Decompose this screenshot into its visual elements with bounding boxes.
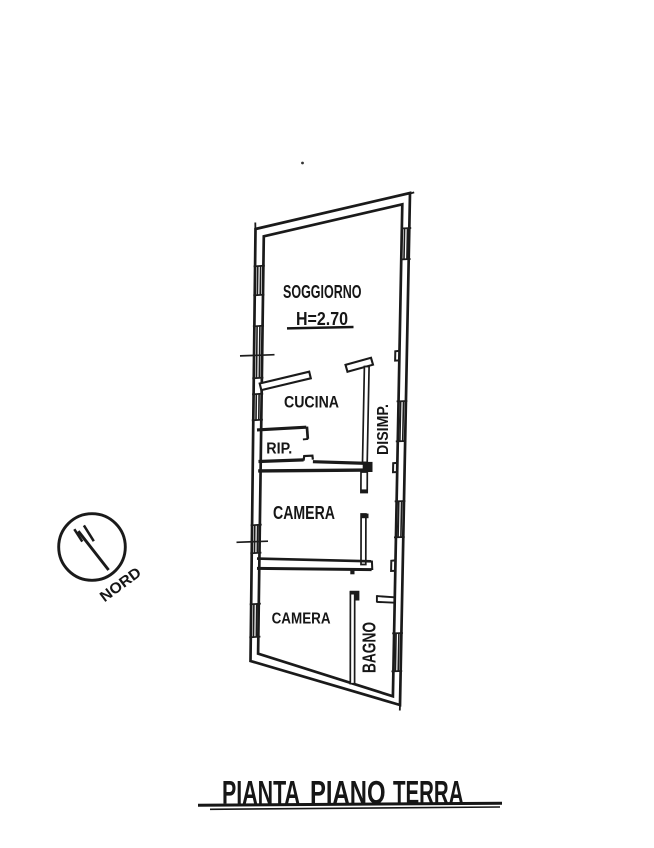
svg-text:BAGNO: BAGNO: [360, 622, 380, 673]
svg-text:H=2.70: H=2.70: [296, 309, 348, 329]
svg-text:SOGGIORNO: SOGGIORNO: [283, 282, 362, 302]
svg-text:CAMERA: CAMERA: [273, 502, 335, 523]
svg-text:RIP.: RIP.: [266, 441, 292, 458]
svg-text:DISIMP.: DISIMP.: [375, 404, 392, 455]
svg-text:CUCINA: CUCINA: [284, 393, 339, 412]
svg-text:CAMERA: CAMERA: [272, 610, 331, 627]
svg-text:NORD: NORD: [97, 564, 145, 606]
